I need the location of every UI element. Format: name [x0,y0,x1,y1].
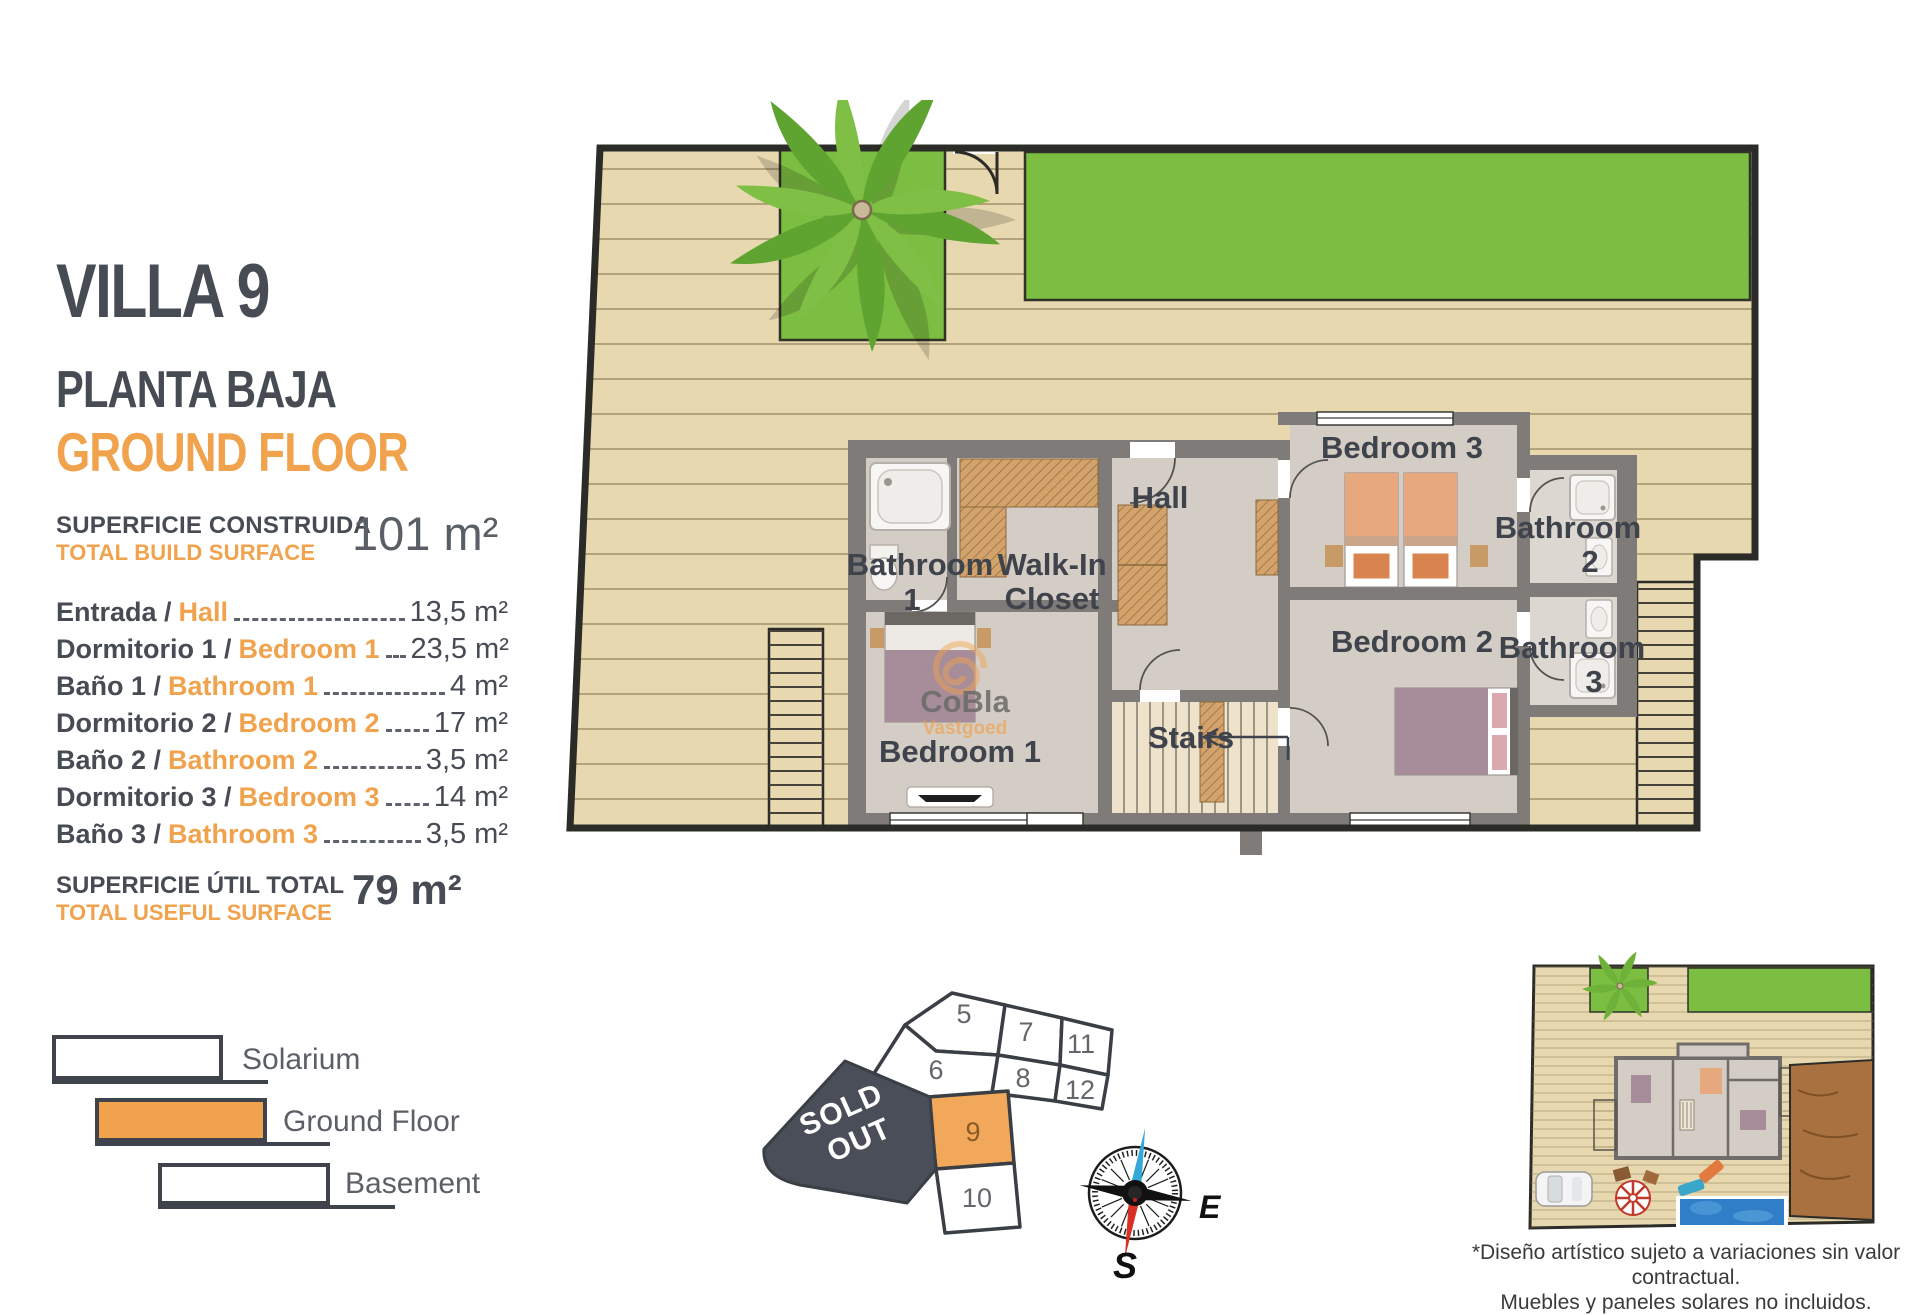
room-name-es: Baño 1 / [56,671,161,702]
room-area-value: 13,5 m² [410,596,508,629]
mini-dirt [1790,1060,1873,1220]
leader-line [324,840,421,843]
legend-line [52,1080,268,1084]
room-name-en: Bedroom 2 [239,708,380,739]
label-bathroom3-number: 3 [1585,664,1602,699]
room-area-list: Entrada /Hall13,5 m² Dormitorio 1 /Bedro… [56,596,508,855]
label-bathroom2-number: 2 [1581,544,1598,579]
room-area-value: 17 m² [434,707,508,740]
disclaimer: *Diseño artístico sujeto a variaciones s… [1470,1240,1902,1315]
room-area-value: 3,5 m² [426,744,508,777]
room-name-es: Dormitorio 2 / [56,708,232,739]
bathtub [870,463,950,530]
disclaimer-line-2: Muebles y paneles solares no incluidos. [1470,1290,1902,1315]
disclaimer-line-1: *Diseño artístico sujeto a variaciones s… [1470,1240,1902,1290]
leader-line [386,803,429,806]
legend-label-ground-floor: Ground Floor [283,1105,460,1139]
useful-surface-value: 79 m² [352,866,462,914]
room-area-value: 3,5 m² [426,818,508,851]
plot-number-5: 5 [956,999,971,1029]
legend-label-basement: Basement [345,1167,480,1201]
leader-line [324,766,421,769]
label-bathroom1-number: 1 [903,582,920,617]
grass-patch-large [1025,152,1750,300]
plot-number-10: 10 [962,1183,992,1213]
exterior-stairs-left [769,629,823,828]
compass-south-label: S [1113,1245,1137,1285]
compass-east-label: E [1199,1189,1222,1225]
useful-surface-label-en: TOTAL USEFUL SURFACE [56,900,332,926]
label-bedroom3: Bedroom 3 [1321,430,1483,465]
legend-box-basement [158,1163,330,1205]
label-bathroom2: Bathroom [1495,510,1641,545]
plot-number-6: 6 [928,1055,943,1085]
subtitle-spanish: PLANTA BAJA [56,360,406,420]
room-name-en: Bathroom 3 [168,819,318,850]
room-area-row: Baño 3 /Bathroom 33,5 m² [56,818,508,855]
site-plan-thumbnail [1528,950,1890,1240]
plot-number-8: 8 [1015,1063,1030,1093]
build-surface-value: 101 m² [352,506,498,561]
room-name-es: Entrada / [56,597,172,628]
plot-number-7: 7 [1018,1017,1033,1047]
tv-console [907,787,993,807]
build-surface-label-en: TOTAL BUILD SURFACE [56,540,315,566]
leader-line [386,655,406,658]
subtitle-english: GROUND FLOOR [56,420,496,484]
leader-line [234,618,405,621]
label-stairs: Stairs [1148,720,1234,755]
mini-car [1536,1172,1592,1206]
room-area-row: Dormitorio 3 /Bedroom 314 m² [56,781,508,818]
mini-grass-large [1688,968,1871,1012]
room-name-es: Baño 2 / [56,745,161,776]
mini-house [1594,1044,1798,1158]
page-title: VILLA 9 [56,248,322,335]
mini-pool [1676,1196,1788,1228]
room-area-value: 23,5 m² [411,633,509,666]
compass-icon: E S [1075,1110,1255,1285]
useful-surface-label-es: SUPERFICIE ÚTIL TOTAL [56,872,344,900]
label-bedroom2: Bedroom 2 [1331,624,1493,659]
room-area-row: Dormitorio 2 /Bedroom 217 m² [56,707,508,744]
leader-line [386,729,429,732]
plot-number-11: 11 [1067,1029,1095,1059]
mini-stairs-left [1594,1100,1616,1150]
room-name-en: Bathroom 2 [168,745,318,776]
legend-box-ground-floor [95,1098,267,1142]
room-name-en: Bedroom 3 [239,782,380,813]
room-area-value: 4 m² [450,670,508,703]
legend-line [95,1142,330,1146]
legend-line [158,1205,395,1209]
leader-line [324,692,445,695]
room-name-es: Dormitorio 1 / [56,634,232,665]
label-hall: Hall [1132,480,1189,515]
room-name-en: Bedroom 1 [239,634,380,665]
label-bathroom3: Bathroom [1499,630,1645,665]
room-name-es: Baño 3 / [56,819,161,850]
build-surface-label-es: SUPERFICIE CONSTRUIDA [56,512,371,540]
plot-number-9: 9 [965,1117,980,1147]
room-name-es: Dormitorio 3 / [56,782,232,813]
exterior-stairs-right [1637,582,1697,828]
svg-text:CoBla: CoBla [920,684,1010,719]
label-bathroom1: Bathroom [847,547,993,582]
label-walkin-1: Walk-In [997,547,1106,582]
room-name-en: Hall [179,597,229,628]
room-area-row: Baño 1 /Bathroom 14 m² [56,670,508,707]
room-name-en: Bathroom 1 [168,671,318,702]
legend-box-solarium [52,1035,223,1080]
label-bedroom1: Bedroom 1 [879,734,1041,769]
room-area-row: Entrada /Hall13,5 m² [56,596,508,633]
floor-plan: CoBla Vastgoed [540,100,1900,860]
room-area-value: 14 m² [434,781,508,814]
stair-treads [1104,702,1280,813]
label-walkin-2: Closet [1005,581,1100,616]
room-area-row: Baño 2 /Bathroom 23,5 m² [56,744,508,781]
floor-legend: Solarium Ground Floor Basement [45,1035,525,1225]
bedroom2-bed [1395,688,1518,775]
legend-label-solarium: Solarium [242,1043,360,1077]
room-area-row: Dormitorio 1 /Bedroom 123,5 m² [56,633,508,670]
plot-number-12: 12 [1065,1075,1095,1105]
